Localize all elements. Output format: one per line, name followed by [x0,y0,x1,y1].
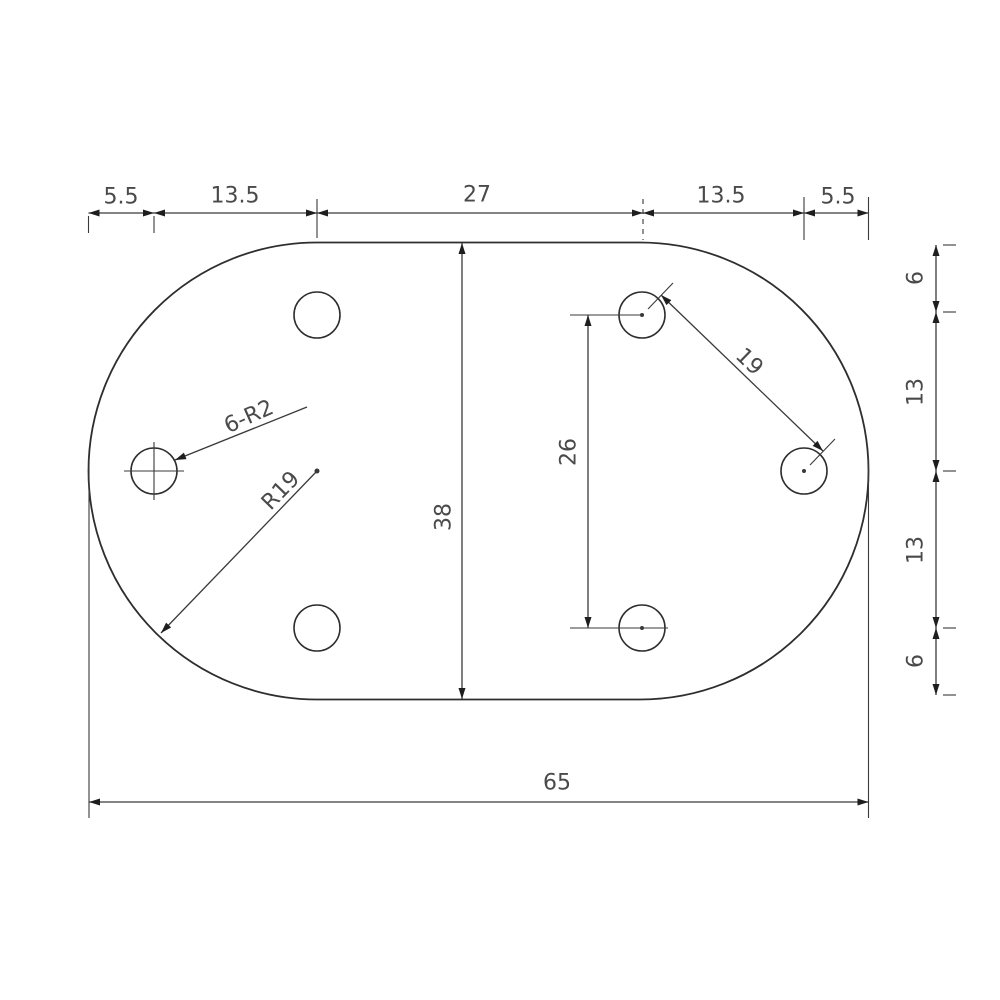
dim-label-38: 38 [432,503,457,531]
dim-label-26: 26 [557,438,582,466]
dim-label-right-13-lower: 13 [904,536,929,564]
callout-end-radius-r19: R19 [158,467,319,636]
hole-top-left [294,292,340,338]
plate-outline [89,243,869,700]
dim-label-top-13-5-right: 13.5 [697,184,746,209]
callout-label-r19: R19 [257,467,305,516]
dim-label-right-6-bottom: 6 [904,654,929,668]
dim-right-chain: 6 13 13 6 [904,245,957,695]
holes [124,292,827,651]
dim-19-line [661,295,823,451]
dim-label-top-5-5-left: 5.5 [104,185,139,210]
dim-label-65: 65 [543,771,571,796]
dim-label-top-13-5-left: 13.5 [211,184,260,209]
dim-top-chain: 5.5 13.5 27 13.5 5.5 [89,183,869,241]
dim-height-38: 38 [432,243,466,699]
dim-19-ext-upper [648,283,673,309]
dim-overall-width-65: 65 [89,458,869,818]
dim-label-top-27: 27 [463,183,491,208]
hole-bottom-left [294,605,340,651]
dim-hole-spacing-19: 19 [648,283,835,465]
drawing-svg: 5.5 13.5 27 13.5 5.5 6 13 13 6 38 [0,0,1000,1000]
hole-middle-right-center-dot [802,469,806,473]
dim-hole-spacing-26: 26 [557,315,669,628]
callout-holes-6-r2: 6-R2 [174,395,307,463]
callout-label-6-r2: 6-R2 [221,395,278,439]
dim-label-right-6-top: 6 [904,271,929,285]
dim-label-top-5-5-right: 5.5 [821,185,856,210]
dim-label-19: 19 [730,343,768,380]
hole-middle-left-crosshair [124,442,184,500]
dim-label-right-13-upper: 13 [904,378,929,406]
engineering-drawing-canvas: 5.5 13.5 27 13.5 5.5 6 13 13 6 38 [0,0,1000,1000]
